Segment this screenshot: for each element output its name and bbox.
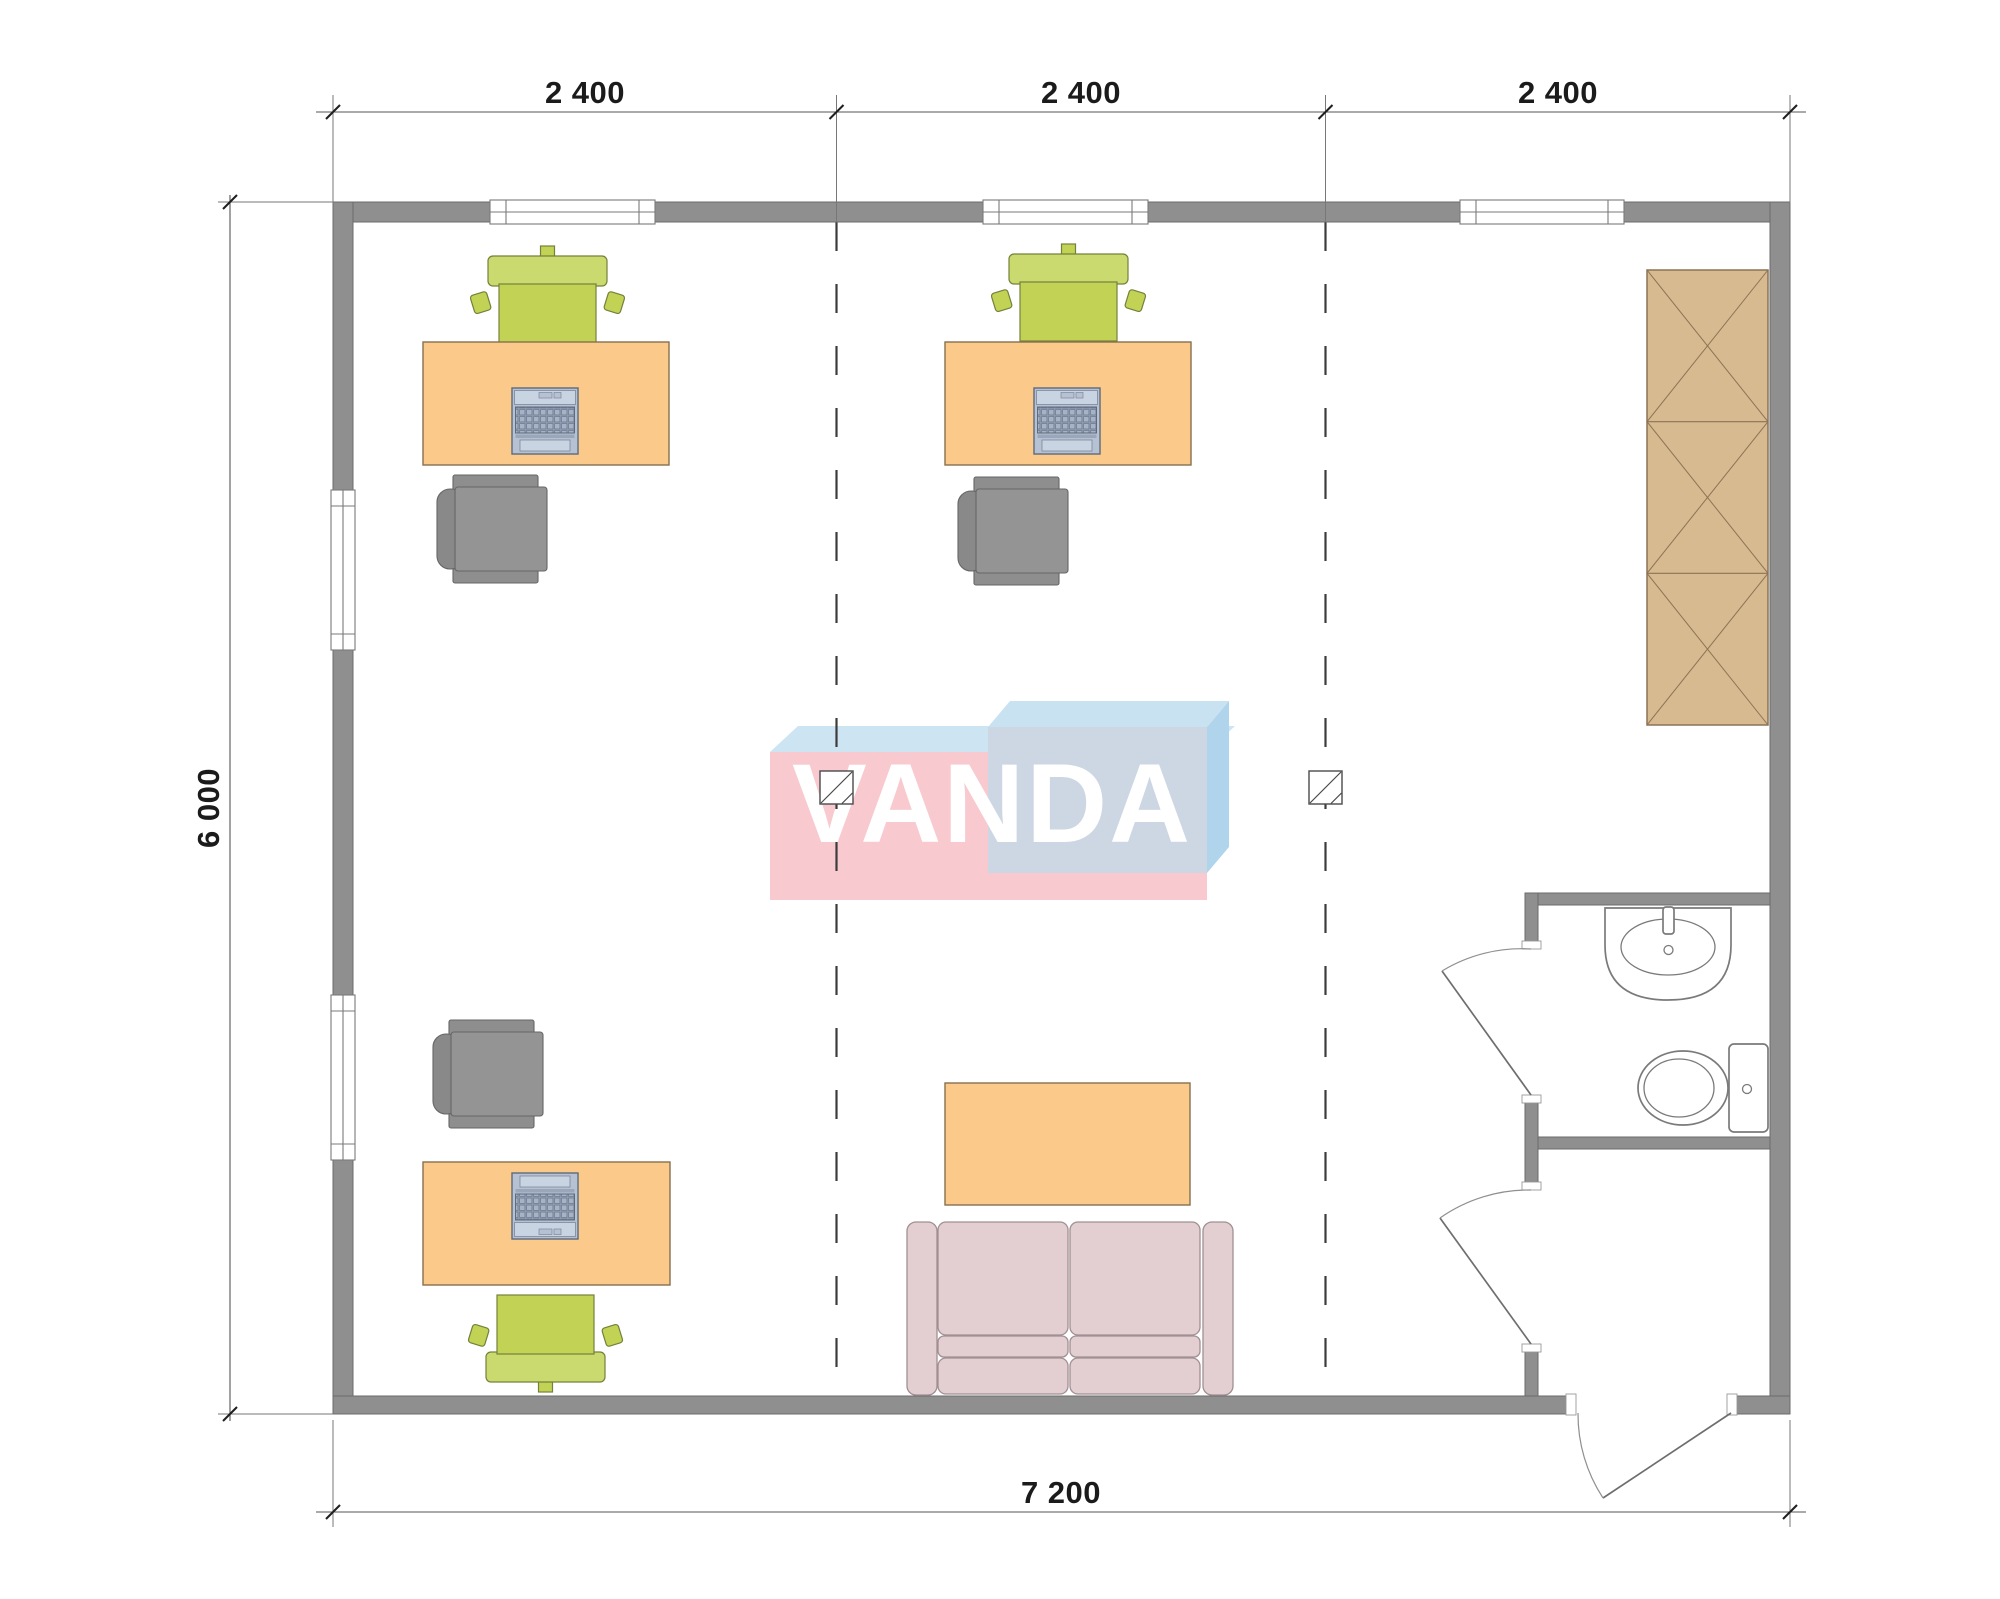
sofa-back-cushion (1070, 1222, 1200, 1335)
logo-right-box-top-face (988, 701, 1229, 727)
dimension-label-left: 6 000 (191, 768, 226, 848)
window (331, 490, 355, 650)
bottom-wall-segment (1737, 1396, 1790, 1414)
office-chair-icon (468, 1295, 623, 1392)
door-jamb (1522, 1095, 1541, 1103)
partition-wall-segment (1525, 893, 1538, 941)
sofa-seat-cushion (1070, 1336, 1200, 1357)
dimension-label-top-3: 2 400 (1518, 75, 1598, 110)
bathroom-bottom-wall (1525, 1137, 1770, 1149)
coffee-table (945, 1083, 1190, 1205)
left-wall-segment (333, 1160, 353, 1414)
top-wall-segment (1624, 202, 1790, 222)
bathroom-fixtures (1605, 907, 1768, 1132)
partition-wall-segment (1525, 1103, 1538, 1182)
door-jamb (1522, 1344, 1541, 1352)
top-wall-segment (333, 202, 490, 222)
sofa-front-cushion (1070, 1358, 1200, 1394)
floor-plan-drawing: VANDA (0, 0, 2000, 1599)
floor-plan: VANDA (0, 0, 2000, 1599)
dimension-label-bottom: 7 200 (1021, 1475, 1101, 1510)
laptop-icon (1034, 388, 1100, 454)
window (1460, 200, 1624, 224)
left-wall-segment (333, 202, 353, 490)
sofa-armrest (1203, 1222, 1233, 1395)
door-jamb (1522, 941, 1541, 949)
logo-right-box-side-face (1207, 701, 1229, 873)
workstation-2 (945, 244, 1191, 585)
right-wall (1770, 202, 1790, 1414)
top-wall-segment (655, 202, 983, 222)
visitor-chair-icon (433, 1020, 543, 1128)
structural-column-icon (820, 771, 853, 804)
entrance-door (1578, 1413, 1731, 1498)
dimension-label-top-2: 2 400 (1041, 75, 1121, 110)
toilet-icon (1638, 1044, 1768, 1132)
sofa-back-cushion (938, 1222, 1068, 1335)
vestibule-door (1440, 1190, 1531, 1344)
window (490, 200, 655, 224)
wardrobe (1647, 270, 1768, 725)
workstation-3 (423, 1020, 670, 1392)
sofa-seat-cushion (938, 1336, 1068, 1357)
top-wall-segment (1148, 202, 1460, 222)
window (983, 200, 1148, 224)
bathroom-top-wall (1525, 893, 1770, 905)
bottom-wall-segment (333, 1396, 1566, 1414)
door-jamb (1522, 1182, 1541, 1190)
left-wall-segment (333, 650, 353, 995)
visitor-chair-icon (437, 475, 547, 583)
sofa-armrest (907, 1222, 937, 1395)
window (331, 995, 355, 1160)
office-chair-icon (470, 246, 625, 343)
sink-icon (1605, 907, 1731, 1000)
bathroom-door (1442, 949, 1531, 1095)
office-chair-icon (991, 244, 1146, 341)
workstation-1 (423, 246, 669, 583)
partition-wall-segment (1525, 1352, 1538, 1396)
laptop-icon (512, 1173, 578, 1239)
visitor-chair-icon (958, 477, 1068, 585)
door-jamb (1566, 1394, 1576, 1415)
sofa-front-cushion (938, 1358, 1068, 1394)
laptop-icon (512, 388, 578, 454)
dimension-label-top-1: 2 400 (545, 75, 625, 110)
sofa (907, 1222, 1233, 1395)
structural-column-icon (1309, 771, 1342, 804)
door-jamb (1727, 1394, 1737, 1415)
